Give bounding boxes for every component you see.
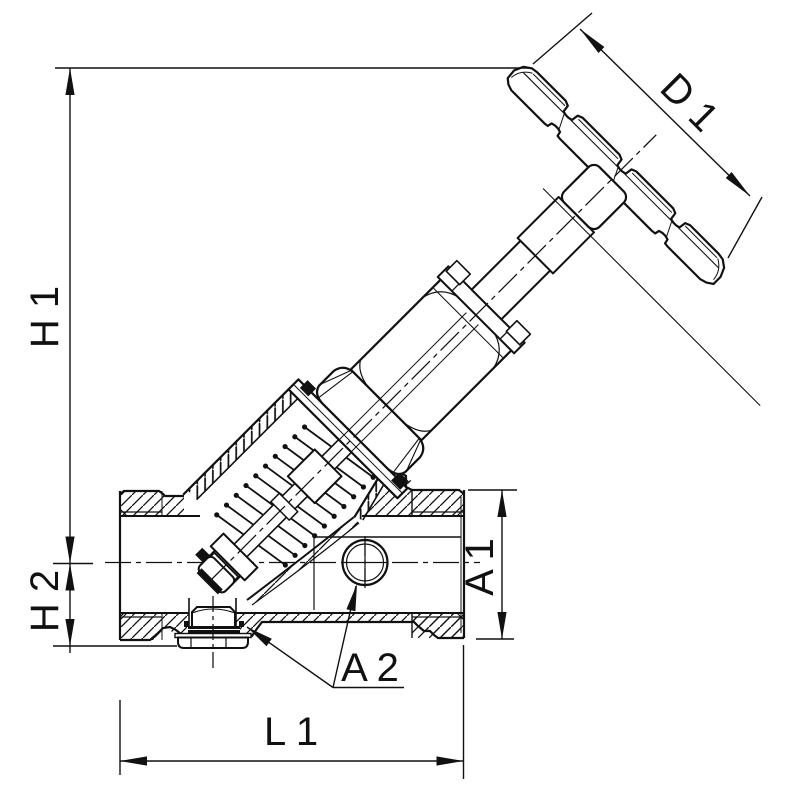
svg-text:A 1: A 1	[458, 538, 502, 596]
svg-text:A 2: A 2	[341, 646, 399, 690]
svg-text:L 1: L 1	[264, 710, 318, 754]
svg-text:H 1: H 1	[23, 286, 67, 348]
svg-text:H 2: H 2	[23, 570, 67, 632]
